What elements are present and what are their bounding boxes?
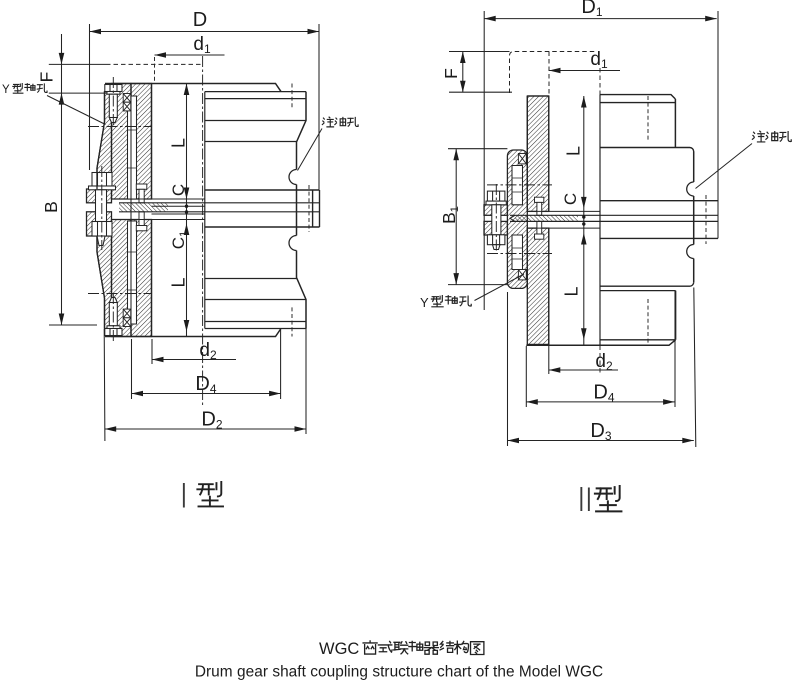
svg-text:Y: Y — [2, 84, 10, 96]
svg-text:L: L — [169, 277, 189, 287]
svg-text:L: L — [169, 138, 189, 148]
svg-text:L: L — [564, 146, 584, 156]
svg-text:C: C — [169, 184, 188, 196]
svg-text:F: F — [37, 72, 57, 83]
svg-text:D: D — [193, 9, 207, 31]
svg-text:C: C — [561, 193, 580, 205]
svg-text:F: F — [441, 68, 461, 79]
svg-text:Drum gear shaft coupling struc: Drum gear shaft coupling structure chart… — [195, 664, 603, 681]
svg-text:L: L — [562, 286, 582, 296]
svg-text:B: B — [41, 201, 61, 213]
svg-text:WGC: WGC — [319, 640, 359, 658]
svg-text:Y: Y — [420, 295, 429, 310]
